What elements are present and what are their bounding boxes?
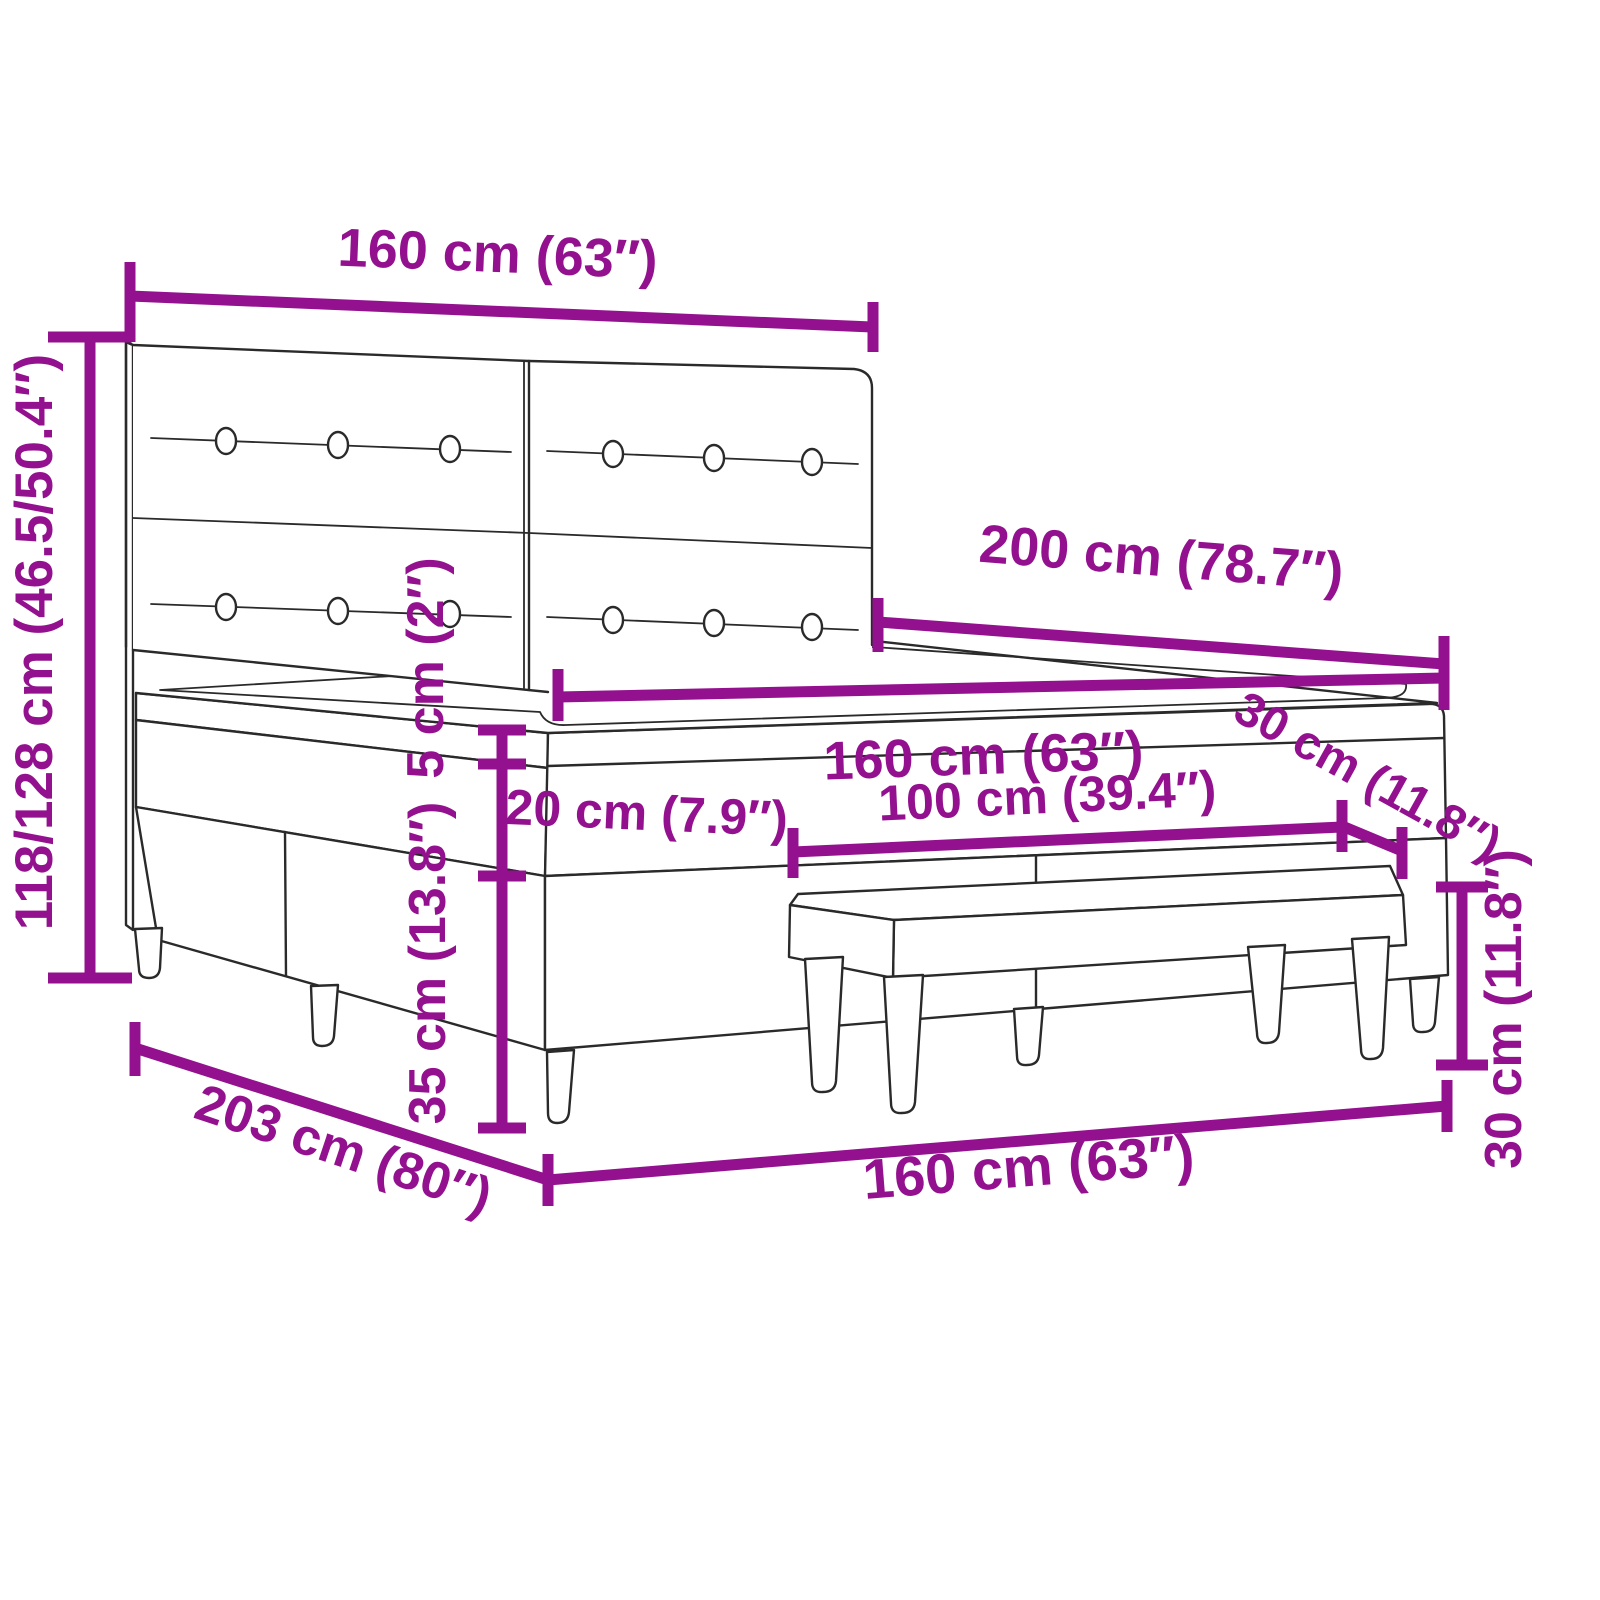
bed-leg-side-mid: [311, 985, 338, 1046]
dim-label-base-height: 35 cm (13.8″): [399, 802, 457, 1125]
dim-label-headboard-height: 118/128 cm (46.5/50.4″): [5, 354, 64, 930]
button: [216, 594, 236, 620]
dim-label-headboard-width: 160 cm (63″): [337, 218, 659, 291]
dim-label-topper-height: 5 cm (2″): [397, 557, 455, 778]
bed-leg-head: [135, 928, 162, 978]
bench-leg-4: [1352, 937, 1389, 1059]
dim-headboard-height: 118/128 cm (46.5/50.4″): [5, 337, 132, 978]
bed-leg-foot-right: [1410, 977, 1439, 1032]
button: [216, 428, 236, 454]
button: [704, 445, 724, 471]
button: [603, 607, 623, 633]
dim-label-bed-width: 160 cm (63″): [861, 1122, 1197, 1211]
bench-leg-3: [1248, 945, 1285, 1043]
button: [328, 598, 348, 624]
bench-leg-1: [805, 957, 843, 1092]
bed-diagram-svg: 160 cm (63″) 118/128 cm (46.5/50.4″) 200…: [0, 0, 1600, 1600]
bed-leg-front-corner: [547, 1050, 574, 1123]
bed-leg-foot-mid: [1014, 1007, 1043, 1065]
button: [328, 432, 348, 458]
bench-leg-2: [884, 975, 923, 1113]
dim-label-bed-length: 200 cm (78.7″): [977, 514, 1346, 602]
headboard-front-fill: [133, 345, 872, 692]
base-side-seam: [285, 832, 286, 976]
dim-headboard-width: 160 cm (63″): [130, 218, 873, 352]
button: [802, 614, 822, 640]
dim-bed-width: 160 cm (63″): [548, 1080, 1447, 1211]
dimension-diagram: 160 cm (63″) 118/128 cm (46.5/50.4″) 200…: [0, 0, 1600, 1600]
button: [440, 436, 460, 462]
button: [603, 441, 623, 467]
button: [802, 449, 822, 475]
button: [704, 610, 724, 636]
dim-label-bench-height: 30 cm (11.8″): [1475, 849, 1533, 1169]
